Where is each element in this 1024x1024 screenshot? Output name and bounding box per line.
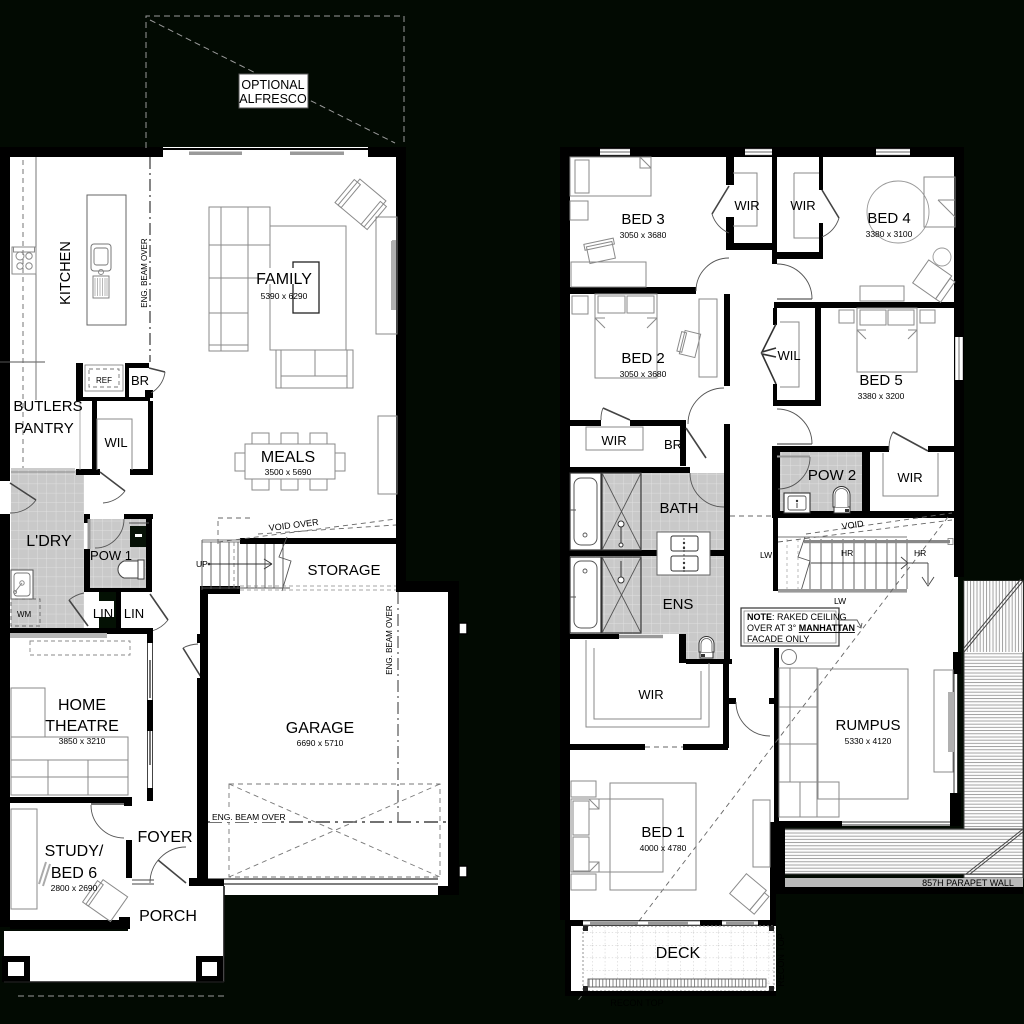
svg-text:LIN: LIN xyxy=(124,606,144,621)
svg-text:FAMILY: FAMILY xyxy=(256,271,312,288)
svg-text:BED 6: BED 6 xyxy=(51,865,97,882)
svg-text:WIL: WIL xyxy=(777,348,800,363)
svg-text:RUMPUS: RUMPUS xyxy=(835,717,900,734)
svg-text:3050 x 3680: 3050 x 3680 xyxy=(620,230,667,240)
svg-text:5390 x 6290: 5390 x 6290 xyxy=(261,291,308,301)
svg-text:3380 x 3200: 3380 x 3200 xyxy=(858,391,905,401)
svg-text:POW 2: POW 2 xyxy=(808,467,856,484)
svg-text:ENS: ENS xyxy=(663,596,694,613)
svg-text:3380 x 3100: 3380 x 3100 xyxy=(866,229,913,239)
svg-text:OPTIONAL: OPTIONAL xyxy=(241,78,304,92)
svg-text:5330 x 4120: 5330 x 4120 xyxy=(845,736,892,746)
svg-text:UP: UP xyxy=(196,559,208,569)
svg-text:FACADE ONLY: FACADE ONLY xyxy=(747,634,809,644)
svg-text:MEALS: MEALS xyxy=(261,449,315,466)
svg-text:BED 4: BED 4 xyxy=(867,210,910,227)
svg-text:HR: HR xyxy=(841,548,853,558)
svg-text:BED 1: BED 1 xyxy=(641,824,684,841)
svg-text:PORCH: PORCH xyxy=(139,908,197,925)
svg-text:WIR: WIR xyxy=(897,470,922,485)
svg-text:FOYER: FOYER xyxy=(137,829,192,846)
svg-text:POW 1: POW 1 xyxy=(90,548,132,563)
svg-text:WIR: WIR xyxy=(790,198,815,213)
svg-text:BED 5: BED 5 xyxy=(859,372,902,389)
svg-text:ALFRESCO: ALFRESCO xyxy=(239,92,307,106)
svg-text:BR: BR xyxy=(131,373,149,388)
svg-text:REF: REF xyxy=(96,376,112,385)
svg-text:WM: WM xyxy=(17,610,32,619)
svg-text:BUTLERS: BUTLERS xyxy=(13,398,82,415)
svg-text:STORAGE: STORAGE xyxy=(307,562,380,579)
svg-text:BED 2: BED 2 xyxy=(621,350,664,367)
svg-text:4000 x 4780: 4000 x 4780 xyxy=(640,843,687,853)
svg-text:2800 x 2690: 2800 x 2690 xyxy=(51,883,98,893)
svg-text:ENG. BEAM OVER: ENG. BEAM OVER xyxy=(140,238,149,308)
svg-text:HR: HR xyxy=(914,548,926,558)
svg-text:WIR: WIR xyxy=(601,433,626,448)
svg-text:ENG. BEAM OVER: ENG. BEAM OVER xyxy=(212,812,286,822)
svg-text:3050 x 3680: 3050 x 3680 xyxy=(620,369,667,379)
svg-text:WIR: WIR xyxy=(638,687,663,702)
svg-text:L'DRY: L'DRY xyxy=(26,533,72,550)
svg-text:RECON TOP: RECON TOP xyxy=(776,933,786,986)
svg-text:RECON TOP: RECON TOP xyxy=(610,998,663,1008)
svg-text:BED 3: BED 3 xyxy=(621,211,664,228)
svg-text:LIN: LIN xyxy=(93,606,113,621)
svg-text:BATH: BATH xyxy=(660,500,699,517)
svg-text:WIL: WIL xyxy=(104,435,127,450)
svg-text:LW: LW xyxy=(834,596,846,606)
svg-text:LW: LW xyxy=(760,550,772,560)
svg-text:857H PARAPET WALL: 857H PARAPET WALL xyxy=(922,878,1014,888)
svg-text:STUDY/: STUDY/ xyxy=(45,843,104,860)
svg-text:NOTE: RAKED CEILING: NOTE: RAKED CEILING xyxy=(747,612,847,622)
svg-text:WIR: WIR xyxy=(734,198,759,213)
svg-text:HOME: HOME xyxy=(58,697,106,714)
svg-text:THEATRE: THEATRE xyxy=(45,718,118,735)
svg-text:OVER AT 3° MANHATTAN: OVER AT 3° MANHATTAN xyxy=(747,623,855,633)
svg-text:PANTRY: PANTRY xyxy=(14,420,73,437)
svg-text:KITCHEN: KITCHEN xyxy=(58,241,74,305)
svg-text:6690 x 5710: 6690 x 5710 xyxy=(297,738,344,748)
svg-text:ENG. BEAM OVER: ENG. BEAM OVER xyxy=(385,605,394,675)
svg-text:GARAGE: GARAGE xyxy=(286,720,354,737)
svg-text:3850 x 3210: 3850 x 3210 xyxy=(59,736,106,746)
svg-text:3500 x 5690: 3500 x 5690 xyxy=(265,467,312,477)
svg-text:DECK: DECK xyxy=(656,945,701,962)
svg-text:BR: BR xyxy=(664,437,682,452)
